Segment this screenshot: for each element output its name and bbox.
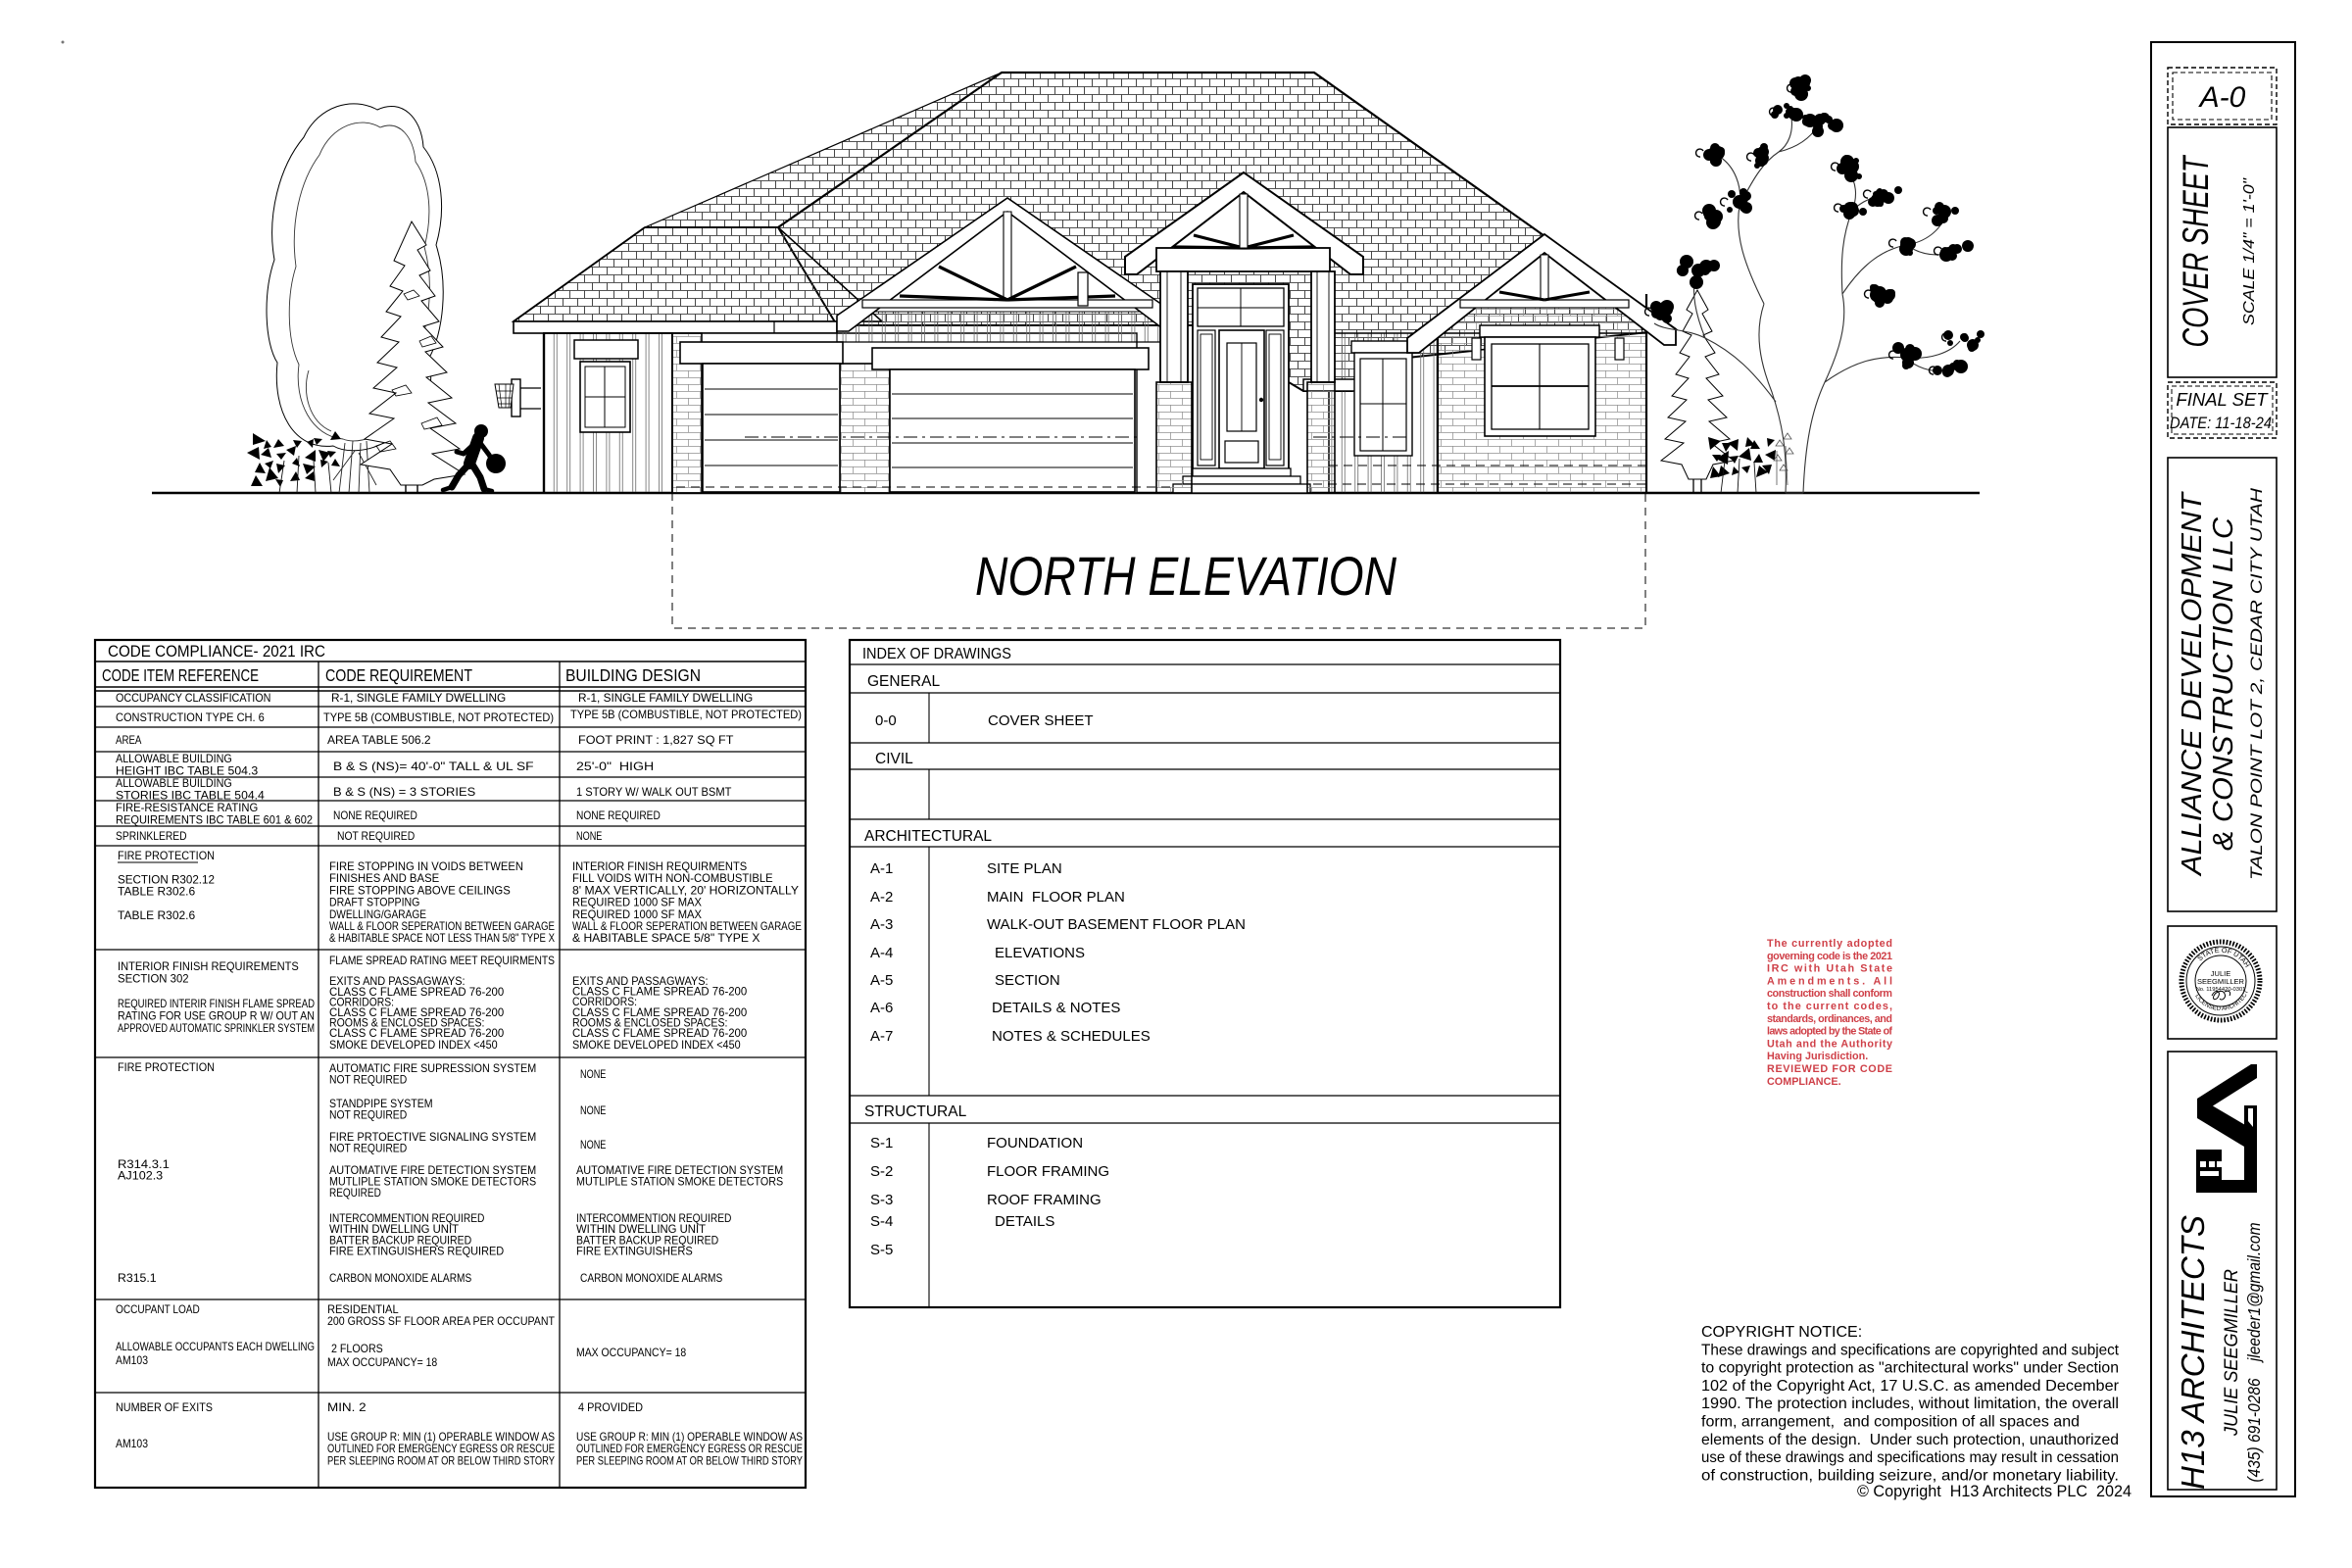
svg-text:to copyright protection as "ar: to copyright protection as "architectura… <box>1701 1360 2119 1377</box>
svg-text:NONE REQUIRED: NONE REQUIRED <box>576 808 661 822</box>
svg-text:A-1: A-1 <box>870 860 893 877</box>
svg-text:A-3: A-3 <box>870 916 893 933</box>
svg-text:NUMBER OF EXITS: NUMBER OF EXITS <box>116 1400 213 1414</box>
svg-text:No. 11954420-0301: No. 11954420-0301 <box>2196 987 2246 993</box>
svg-text:TYPE 5B (COMBUSTIBLE, NOT PROT: TYPE 5B (COMBUSTIBLE, NOT PROTECTED) <box>570 708 802 721</box>
svg-text:DETAILS: DETAILS <box>995 1213 1054 1230</box>
svg-text:construction shall conform: construction shall conform <box>1767 988 1892 1000</box>
svg-text:A-4: A-4 <box>870 945 893 961</box>
svg-text:COPYRIGHT NOTICE:: COPYRIGHT NOTICE: <box>1701 1324 1862 1341</box>
svg-text:S-3: S-3 <box>870 1192 893 1208</box>
svg-text:1990. The protection includes,: 1990. The protection includes, without l… <box>1701 1396 2119 1412</box>
svg-text:SITE PLAN: SITE PLAN <box>987 860 1062 877</box>
svg-text:MAX OCCUPANCY= 18: MAX OCCUPANCY= 18 <box>576 1346 686 1359</box>
svg-text:4 PROVIDED: 4 PROVIDED <box>578 1400 643 1414</box>
svg-text:A-0: A-0 <box>2198 81 2246 114</box>
svg-text:SMOKE DEVELOPED INDEX <450: SMOKE DEVELOPED INDEX <450 <box>329 1038 498 1052</box>
svg-text:APPROVED AUTOMATIC SPRINKLER S: APPROVED AUTOMATIC SPRINKLER SYSTEM <box>118 1021 315 1035</box>
svg-text:use of these drawings and spec: use of these drawings and specifications… <box>1701 1449 2119 1466</box>
svg-text:SECTION 302: SECTION 302 <box>118 972 189 986</box>
svg-text:NONE: NONE <box>580 1103 606 1117</box>
svg-text:MAIN FLOOR PLAN: MAIN FLOOR PLAN <box>987 889 1125 906</box>
svg-text:NONE: NONE <box>580 1138 606 1151</box>
svg-text:TYPE 5B (COMBUSTIBLE, NOT PROT: TYPE 5B (COMBUSTIBLE, NOT PROTECTED) <box>323 710 554 724</box>
svg-text:& CONSTRUCTION LLC: & CONSTRUCTION LLC <box>2208 516 2239 851</box>
svg-text:ARCHITECTURAL: ARCHITECTURAL <box>864 828 992 845</box>
svg-text:25'-0" HIGH: 25'-0" HIGH <box>576 759 654 773</box>
svg-text:S-2: S-2 <box>870 1163 893 1180</box>
svg-text:FLAME SPREAD RATING MEET REQUI: FLAME SPREAD RATING MEET REQUIRMENTS <box>329 954 555 967</box>
svg-text:FOOT PRINT : 1,827 SQ FT: FOOT PRINT : 1,827 SQ FT <box>578 733 734 747</box>
svg-text:B & S (NS) = 3 STORIES: B & S (NS) = 3 STORIES <box>333 785 475 799</box>
svg-text:standards, ordinances, and: standards, ordinances, and <box>1767 1013 1892 1025</box>
svg-text:of construction, building seiz: of construction, building seizure, and/o… <box>1701 1467 2119 1484</box>
svg-text:MIN. 2: MIN. 2 <box>327 1400 367 1414</box>
svg-text:1 STORY W/ WALK OUT BSMT: 1 STORY W/ WALK OUT BSMT <box>576 785 732 799</box>
svg-text:MUTLIPLE STATION SMOKE DETECTO: MUTLIPLE STATION SMOKE DETECTORS <box>576 1174 783 1188</box>
svg-text:CONSTRUCTION TYPE CH. 6: CONSTRUCTION TYPE CH. 6 <box>116 710 265 724</box>
svg-text:COMPLIANCE.: COMPLIANCE. <box>1767 1076 1841 1088</box>
svg-text:AREA: AREA <box>116 733 141 747</box>
svg-text:NOT REQUIRED: NOT REQUIRED <box>329 1141 407 1154</box>
svg-text:2 FLOORS: 2 FLOORS <box>331 1342 383 1355</box>
svg-text:ELEVATIONS: ELEVATIONS <box>995 945 1085 961</box>
svg-text:PER SLEEPING ROOM AT OR BELOW: PER SLEEPING ROOM AT OR BELOW THIRD STOR… <box>576 1453 803 1467</box>
svg-text:FINAL SET: FINAL SET <box>2176 389 2269 410</box>
svg-text:CARBON MONOXIDE ALARMS: CARBON MONOXIDE ALARMS <box>329 1271 471 1285</box>
svg-text:TABLE R302.6: TABLE R302.6 <box>118 908 196 922</box>
svg-text:SEEGMILLER: SEEGMILLER <box>2197 977 2245 986</box>
svg-text:FIRE EXTINGUISHERS REQUIRED: FIRE EXTINGUISHERS REQUIRED <box>329 1245 505 1258</box>
svg-text:ROOF FRAMING: ROOF FRAMING <box>987 1192 1102 1208</box>
svg-text:NOTES & SCHEDULES: NOTES & SCHEDULES <box>992 1028 1151 1045</box>
svg-text:The currently adopted: The currently adopted <box>1767 938 1892 950</box>
svg-text:COVER SHEET: COVER SHEET <box>988 712 1094 729</box>
svg-text:NONE: NONE <box>580 1067 606 1081</box>
svg-text:SECTION: SECTION <box>995 972 1060 989</box>
svg-text:laws adopted by the State of: laws adopted by the State of <box>1767 1026 1892 1038</box>
svg-text:elements of the design. Under: elements of the design. Under such prote… <box>1701 1432 2119 1448</box>
svg-text:MAX OCCUPANCY= 18: MAX OCCUPANCY= 18 <box>327 1355 437 1369</box>
svg-text:These drawings and specificati: These drawings and specifications are co… <box>1701 1342 2120 1358</box>
svg-text:Having Jurisdiction.: Having Jurisdiction. <box>1767 1051 1868 1062</box>
svg-text:NONE REQUIRED: NONE REQUIRED <box>333 808 417 822</box>
svg-text:B & S (NS)= 40'-0" TALL & UL S: B & S (NS)= 40'-0" TALL & UL SF <box>333 759 534 773</box>
svg-text:& HABITABLE SPACE 5/8" TYPE X: & HABITABLE SPACE 5/8" TYPE X <box>572 931 759 945</box>
svg-text:CARBON MONOXIDE ALARMS: CARBON MONOXIDE ALARMS <box>580 1271 722 1285</box>
svg-text:STRUCTURAL: STRUCTURAL <box>864 1103 967 1120</box>
svg-text:OCCUPANT LOAD: OCCUPANT LOAD <box>116 1302 200 1316</box>
svg-text:FIRE EXTINGUISHERS: FIRE EXTINGUISHERS <box>576 1245 693 1258</box>
svg-text:© Copyright H13 Architects PL: © Copyright H13 Architects PLC 2024 <box>1857 1483 2131 1500</box>
svg-text:SPRINKLERED: SPRINKLERED <box>116 829 187 843</box>
svg-text:GENERAL: GENERAL <box>867 673 940 690</box>
svg-text:OCCUPANCY CLASSIFICATION: OCCUPANCY CLASSIFICATION <box>116 691 270 705</box>
svg-text:A-2: A-2 <box>870 889 893 906</box>
svg-text:A-7: A-7 <box>870 1028 893 1045</box>
svg-text:DETAILS & NOTES: DETAILS & NOTES <box>992 1000 1120 1016</box>
svg-text:CIVIL: CIVIL <box>875 751 913 767</box>
svg-text:FOUNDATION: FOUNDATION <box>987 1135 1083 1151</box>
svg-text:NOT REQUIRED: NOT REQUIRED <box>337 829 415 843</box>
svg-text:FIRE PROTECTION: FIRE PROTECTION <box>118 849 215 862</box>
svg-text:R315.1: R315.1 <box>118 1271 157 1285</box>
svg-text:Amendments. All: Amendments. All <box>1767 975 1892 987</box>
svg-text:FIRE PROTECTION: FIRE PROTECTION <box>118 1060 215 1074</box>
svg-text:S-5: S-5 <box>870 1242 893 1258</box>
svg-text:BUILDING DESIGN: BUILDING DESIGN <box>565 665 701 685</box>
svg-text:AM103: AM103 <box>116 1353 148 1367</box>
svg-text:S-4: S-4 <box>870 1213 893 1230</box>
svg-text:AREA TABLE 506.2: AREA TABLE 506.2 <box>327 733 431 747</box>
svg-text:102 of the Copyright Act, 17 U: 102 of the Copyright Act, 17 U.S.C. as a… <box>1701 1378 2120 1395</box>
svg-text:S-1: S-1 <box>870 1135 893 1151</box>
svg-text:JULIE SEEGMILLER: JULIE SEEGMILLER <box>2222 1269 2242 1437</box>
svg-text:A-6: A-6 <box>870 1000 893 1016</box>
svg-text:SCALE 1/4" = 1'-0": SCALE 1/4" = 1'-0" <box>2241 177 2258 325</box>
svg-text:TALON POINT LOT 2, CEDAR CITY: TALON POINT LOT 2, CEDAR CITY UTAH <box>2248 488 2266 880</box>
svg-text:R-1, SINGLE FAMILY DWELLING: R-1, SINGLE FAMILY DWELLING <box>578 691 753 705</box>
svg-text:AM103: AM103 <box>116 1437 148 1450</box>
svg-text:REQUIRED: REQUIRED <box>329 1186 381 1200</box>
svg-text:governing code is the 2021: governing code is the 2021 <box>1767 951 1892 962</box>
svg-text:R-1, SINGLE FAMILY DWELLING: R-1, SINGLE FAMILY DWELLING <box>331 691 506 705</box>
svg-text:form, arrangement, and compos: form, arrangement, and composition of al… <box>1701 1414 2080 1431</box>
svg-text:NORTH ELEVATION: NORTH ELEVATION <box>975 545 1396 607</box>
svg-text:NOT REQUIRED: NOT REQUIRED <box>329 1072 407 1086</box>
svg-text:DATE: 11-18-24: DATE: 11-18-24 <box>2170 414 2272 432</box>
svg-text:ALLOWABLE OCCUPANTS EACH DWELL: ALLOWABLE OCCUPANTS EACH DWELLING <box>116 1340 315 1353</box>
svg-text:WALK-OUT BASEMENT FLOOR PLAN: WALK-OUT BASEMENT FLOOR PLAN <box>987 916 1246 933</box>
svg-text:& HABITABLE SPACE NOT LESS THA: & HABITABLE SPACE NOT LESS THAN 5/8" TYP… <box>329 931 555 945</box>
svg-text:IRC with Utah State: IRC with Utah State <box>1767 963 1892 975</box>
svg-text:SMOKE DEVELOPED INDEX <450: SMOKE DEVELOPED INDEX <450 <box>572 1038 741 1052</box>
svg-text:AJ102.3: AJ102.3 <box>118 1168 164 1182</box>
svg-text:H13 ARCHITECTS: H13 ARCHITECTS <box>2175 1215 2211 1490</box>
svg-text:REQUIREMENTS IBC TABLE 601 & 6: REQUIREMENTS IBC TABLE 601 & 602 <box>116 812 313 826</box>
svg-text:0-0: 0-0 <box>875 712 897 729</box>
svg-text:TABLE R302.6: TABLE R302.6 <box>118 885 196 899</box>
svg-text:INDEX OF DRAWINGS: INDEX OF DRAWINGS <box>862 646 1011 662</box>
svg-text:200 GROSS SF FLOOR AREA PER OC: 200 GROSS SF FLOOR AREA PER OCCUPANT <box>327 1314 556 1328</box>
svg-text:REVIEWED FOR CODE: REVIEWED FOR CODE <box>1767 1063 1892 1075</box>
svg-text:PER SLEEPING ROOM AT OR BELOW: PER SLEEPING ROOM AT OR BELOW THIRD STOR… <box>327 1453 555 1467</box>
svg-text:COVER SHEET: COVER SHEET <box>2176 155 2216 348</box>
svg-text:ALLIANCE DEVELOPMENT: ALLIANCE DEVELOPMENT <box>2177 491 2208 878</box>
svg-text:(435) 691-0286 jleeder1@gma: (435) 691-0286 jleeder1@gmail.com <box>2244 1223 2264 1483</box>
svg-text:CODE REQUIREMENT: CODE REQUIREMENT <box>325 665 472 685</box>
svg-text:FLOOR FRAMING: FLOOR FRAMING <box>987 1163 1109 1180</box>
svg-text:Utah and the Authority: Utah and the Authority <box>1767 1038 1892 1050</box>
svg-text:CODE ITEM REFERENCE: CODE ITEM REFERENCE <box>102 665 259 685</box>
svg-text:NOT REQUIRED: NOT REQUIRED <box>329 1107 407 1121</box>
svg-text:NONE: NONE <box>576 829 602 843</box>
svg-text:CODE COMPLIANCE- 2021 IRC: CODE COMPLIANCE- 2021 IRC <box>108 642 325 661</box>
svg-text:A-5: A-5 <box>870 972 893 989</box>
